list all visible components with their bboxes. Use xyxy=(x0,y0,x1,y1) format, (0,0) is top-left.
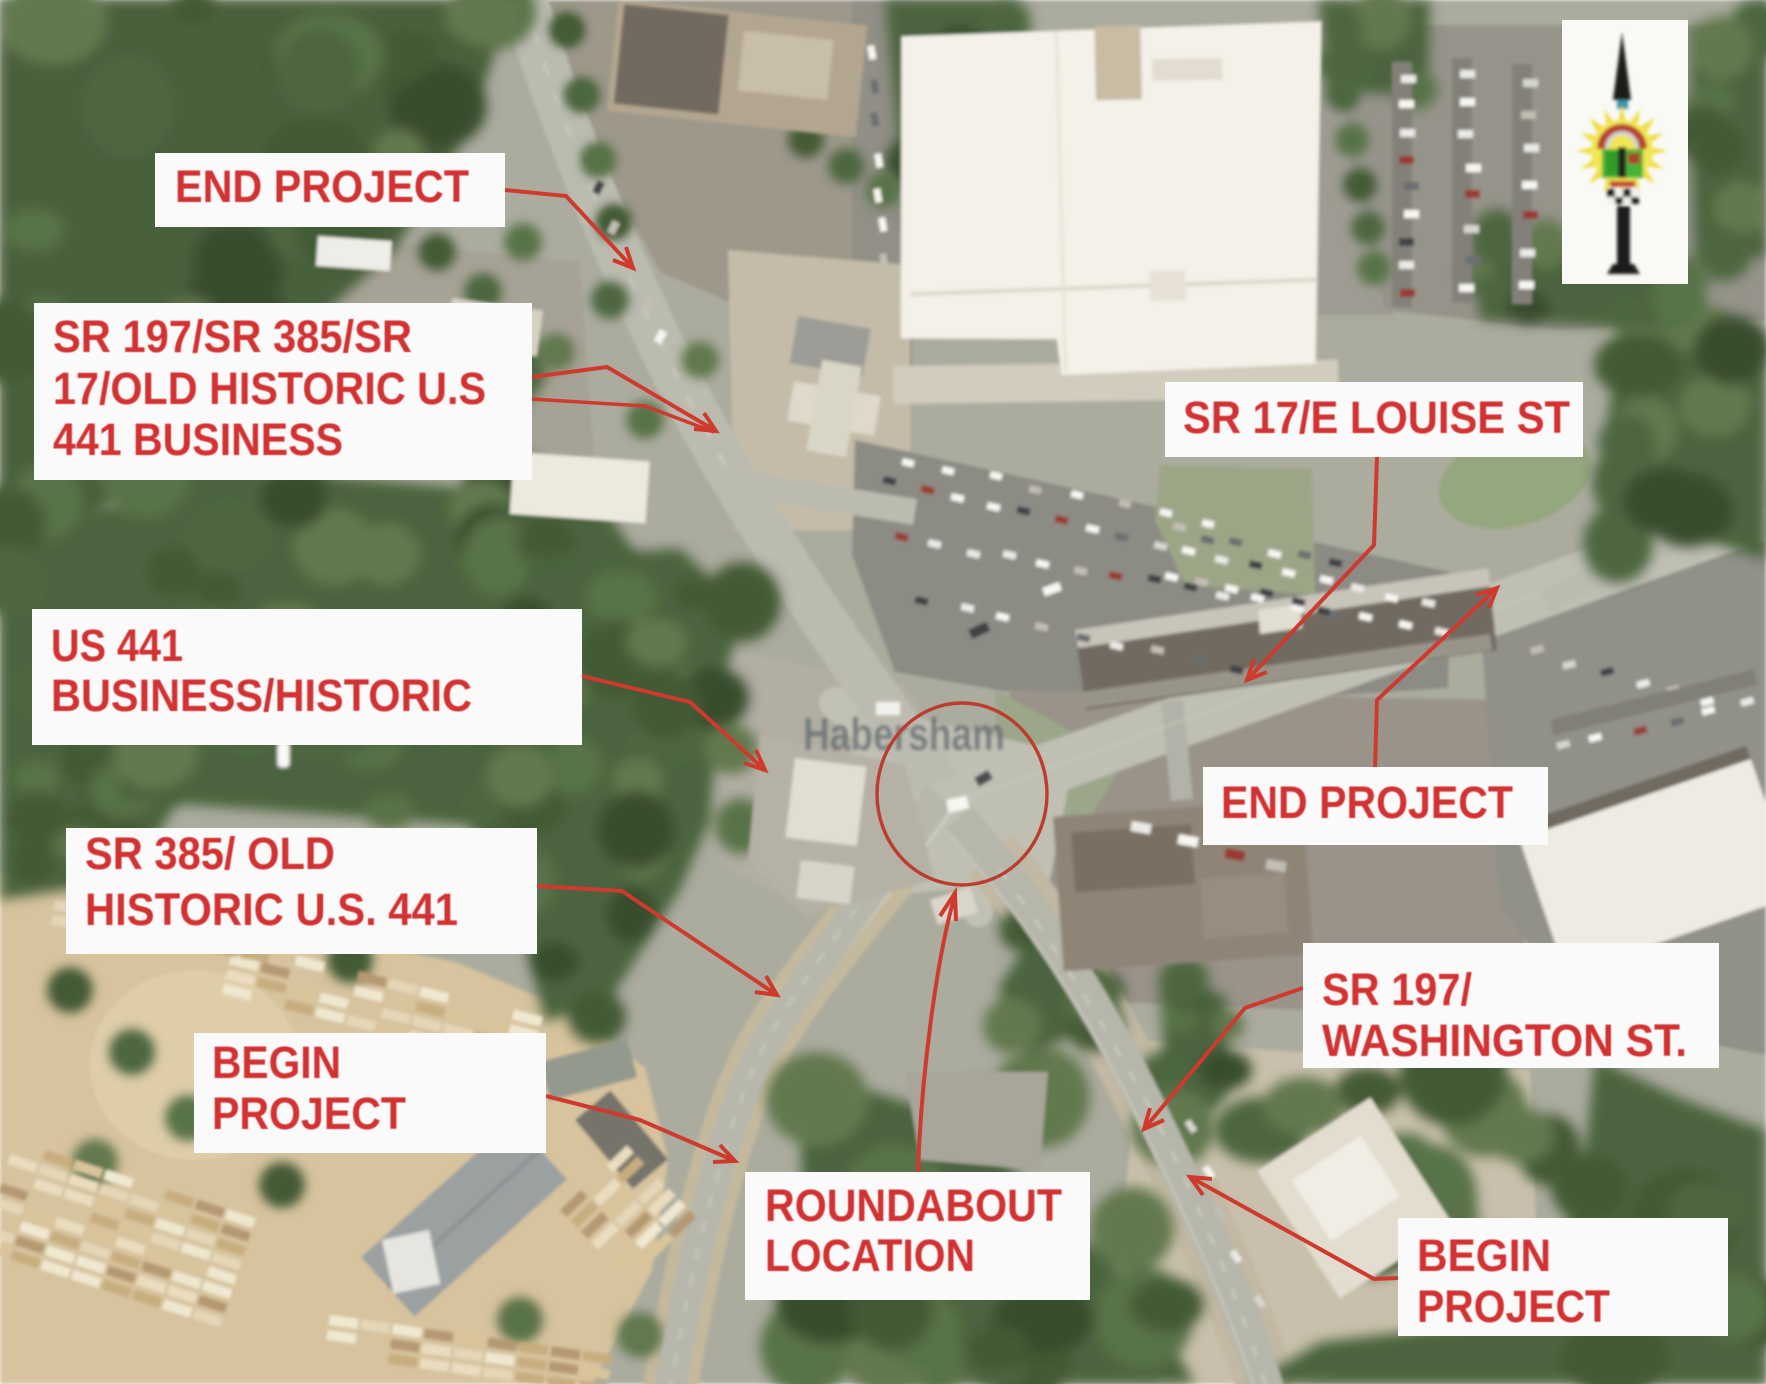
svg-text:BEGIN: BEGIN xyxy=(1417,1230,1551,1281)
svg-text:PROJECT: PROJECT xyxy=(212,1088,406,1139)
svg-text:BEGIN: BEGIN xyxy=(212,1037,341,1088)
svg-text:SR 197/: SR 197/ xyxy=(1322,964,1472,1015)
svg-text:HISTORIC U.S. 441: HISTORIC U.S. 441 xyxy=(85,884,458,935)
svg-text:ROUNDABOUT: ROUNDABOUT xyxy=(765,1180,1062,1231)
svg-text:441 BUSINESS: 441 BUSINESS xyxy=(53,414,343,465)
svg-text:PROJECT: PROJECT xyxy=(1417,1281,1610,1332)
svg-text:SR 385/ OLD: SR 385/ OLD xyxy=(85,828,335,879)
svg-text:SR 17/E LOUISE ST: SR 17/E LOUISE ST xyxy=(1183,392,1570,443)
svg-text:SR 197/SR 385/SR: SR 197/SR 385/SR xyxy=(53,311,412,362)
svg-text:17/OLD HISTORIC U.S: 17/OLD HISTORIC U.S xyxy=(53,363,486,414)
svg-text:END PROJECT: END PROJECT xyxy=(1221,777,1513,828)
svg-text:US 441: US 441 xyxy=(51,620,183,671)
svg-text:END PROJECT: END PROJECT xyxy=(175,161,469,212)
svg-text:BUSINESS/HISTORIC: BUSINESS/HISTORIC xyxy=(51,670,472,721)
svg-text:WASHINGTON ST.: WASHINGTON ST. xyxy=(1322,1015,1687,1066)
svg-text:LOCATION: LOCATION xyxy=(765,1230,975,1281)
